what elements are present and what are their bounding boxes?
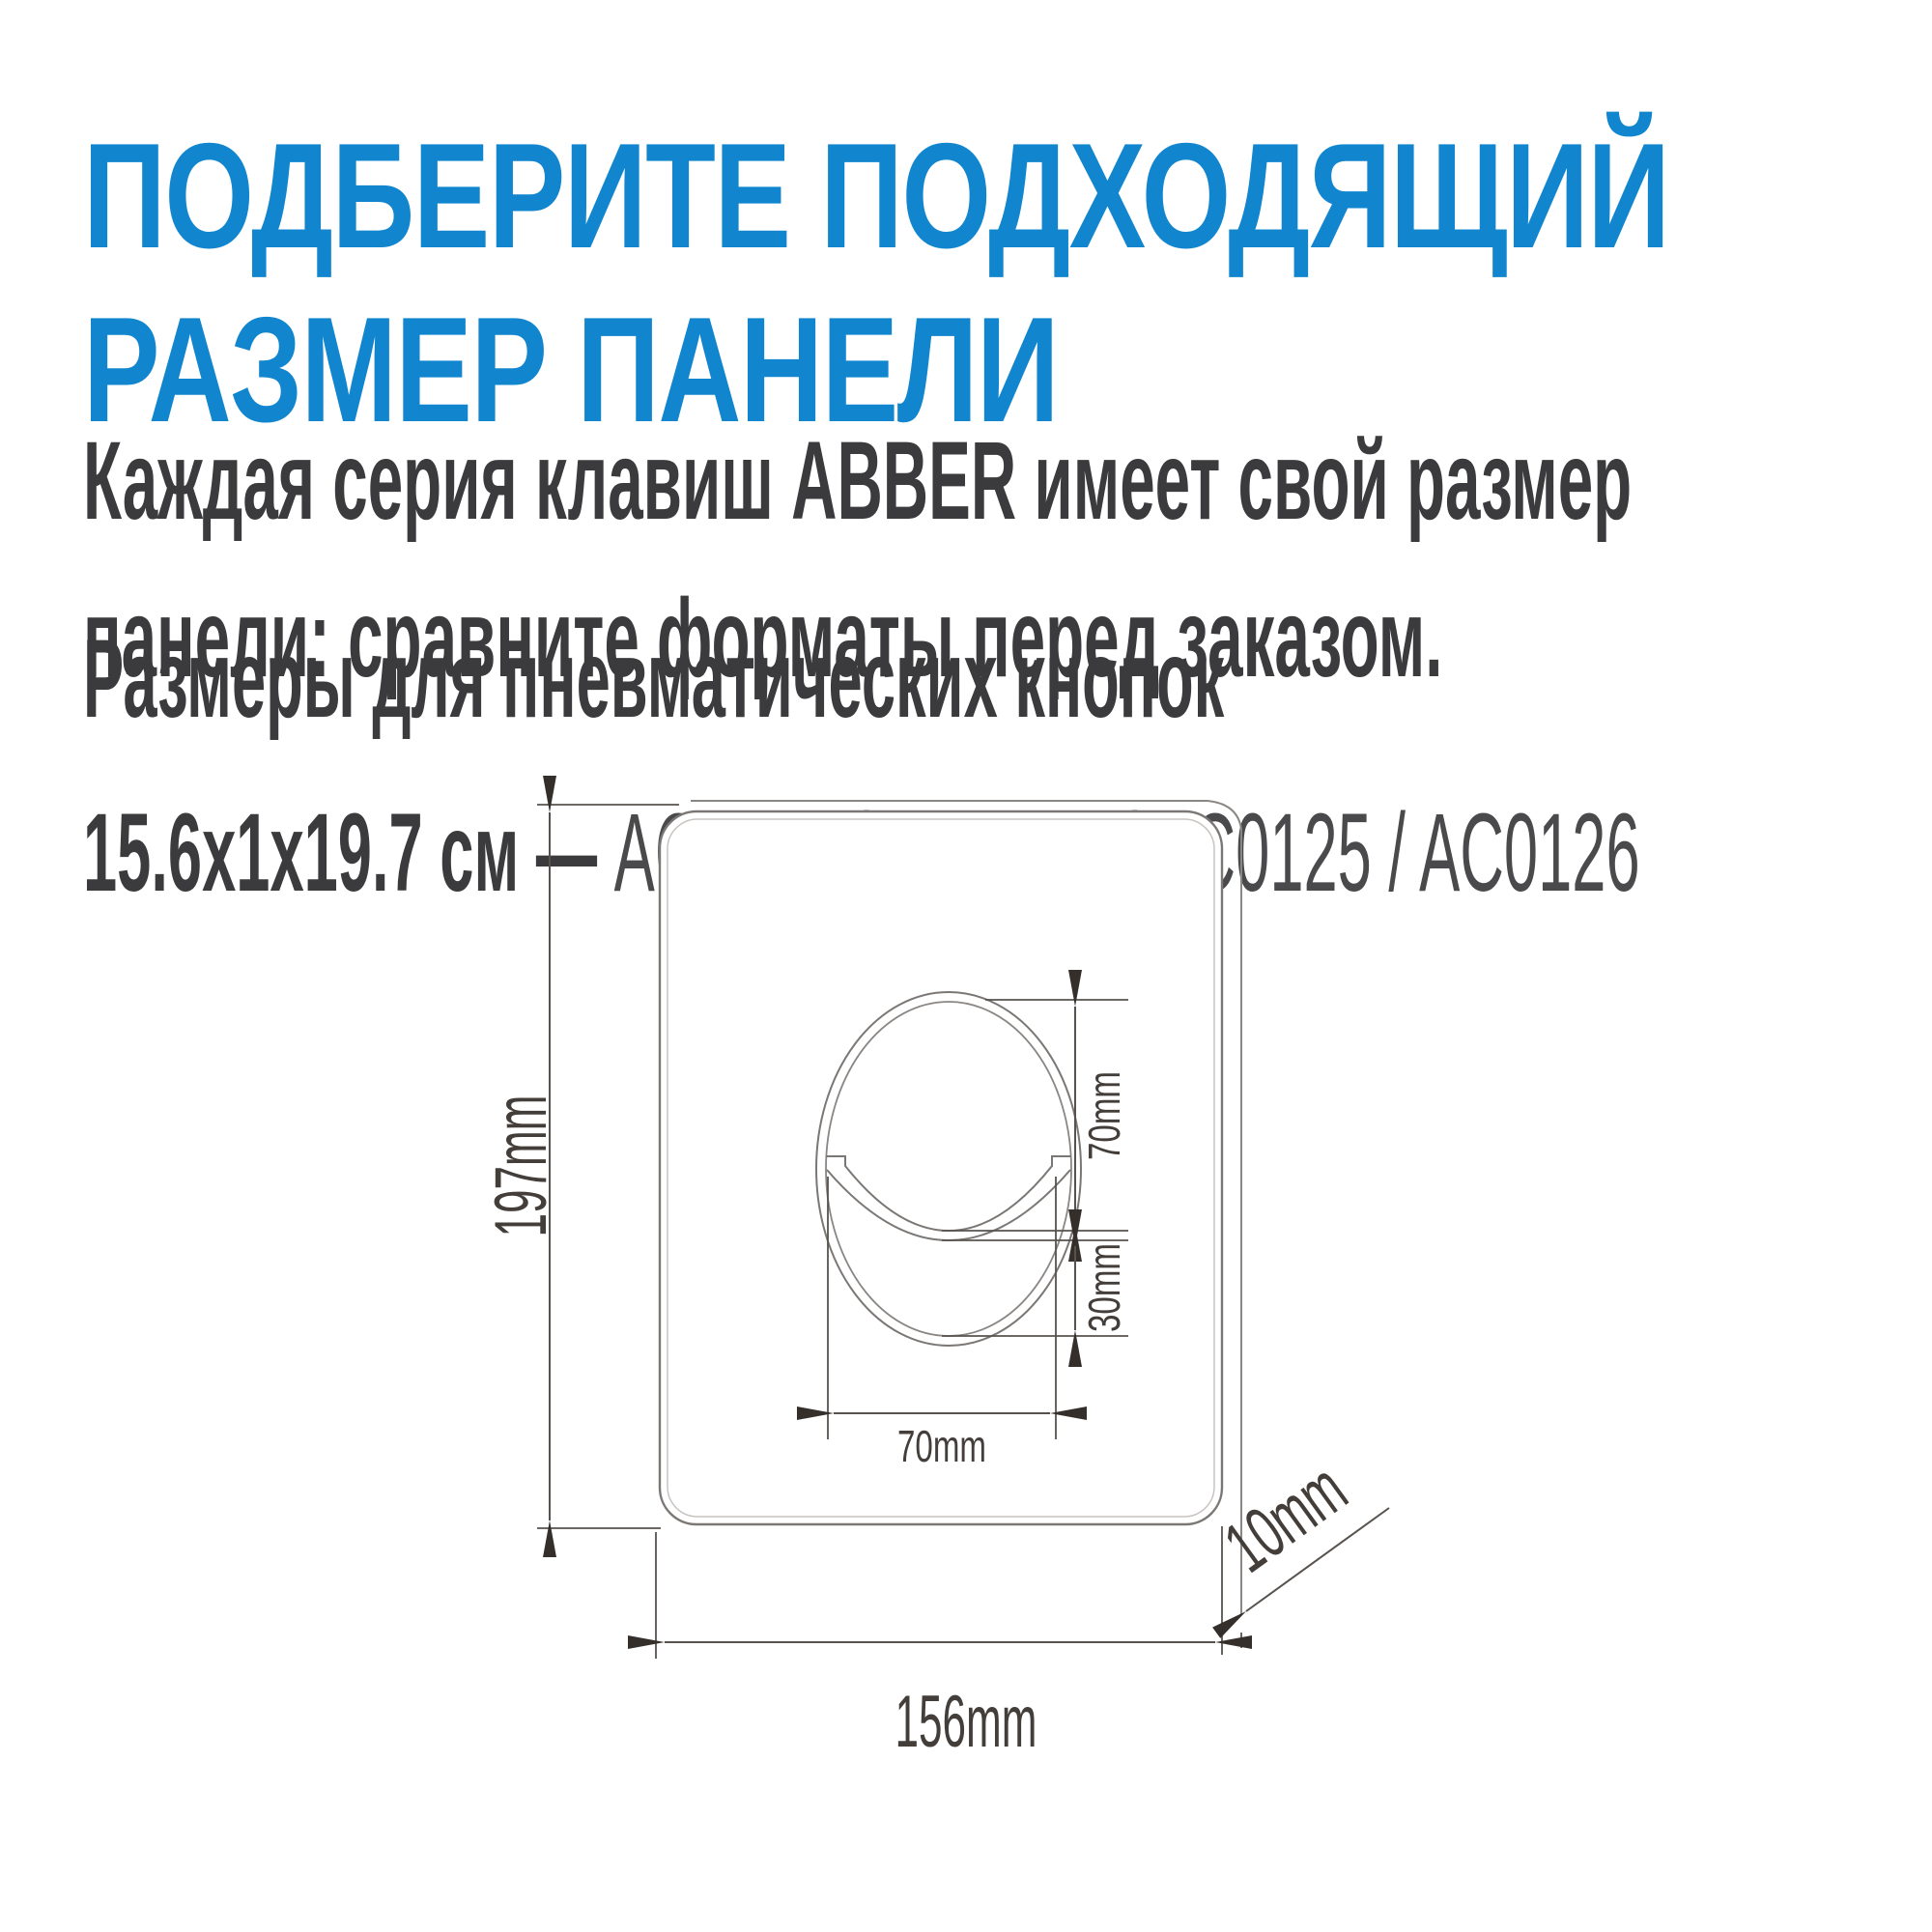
label-button-upper-height: 70mm: [1081, 1071, 1129, 1160]
label-button-width: 70mm: [897, 1423, 986, 1471]
label-panel-depth: 10mm: [1211, 1448, 1361, 1588]
label-button-lower-height: 30mm: [1081, 1243, 1129, 1332]
infographic-page: { "title": { "line1": "ПОДБЕРИТЕ ПОДХОДЯ…: [0, 0, 1932, 1932]
label-panel-width: 156mm: [895, 1682, 1037, 1763]
label-panel-height: 197mm: [481, 1095, 562, 1237]
panel-dimension-drawing: 197mm 156mm 10mm 70mm 30mm 70mm: [0, 0, 1932, 1932]
panel-front-face: [660, 811, 1222, 1524]
